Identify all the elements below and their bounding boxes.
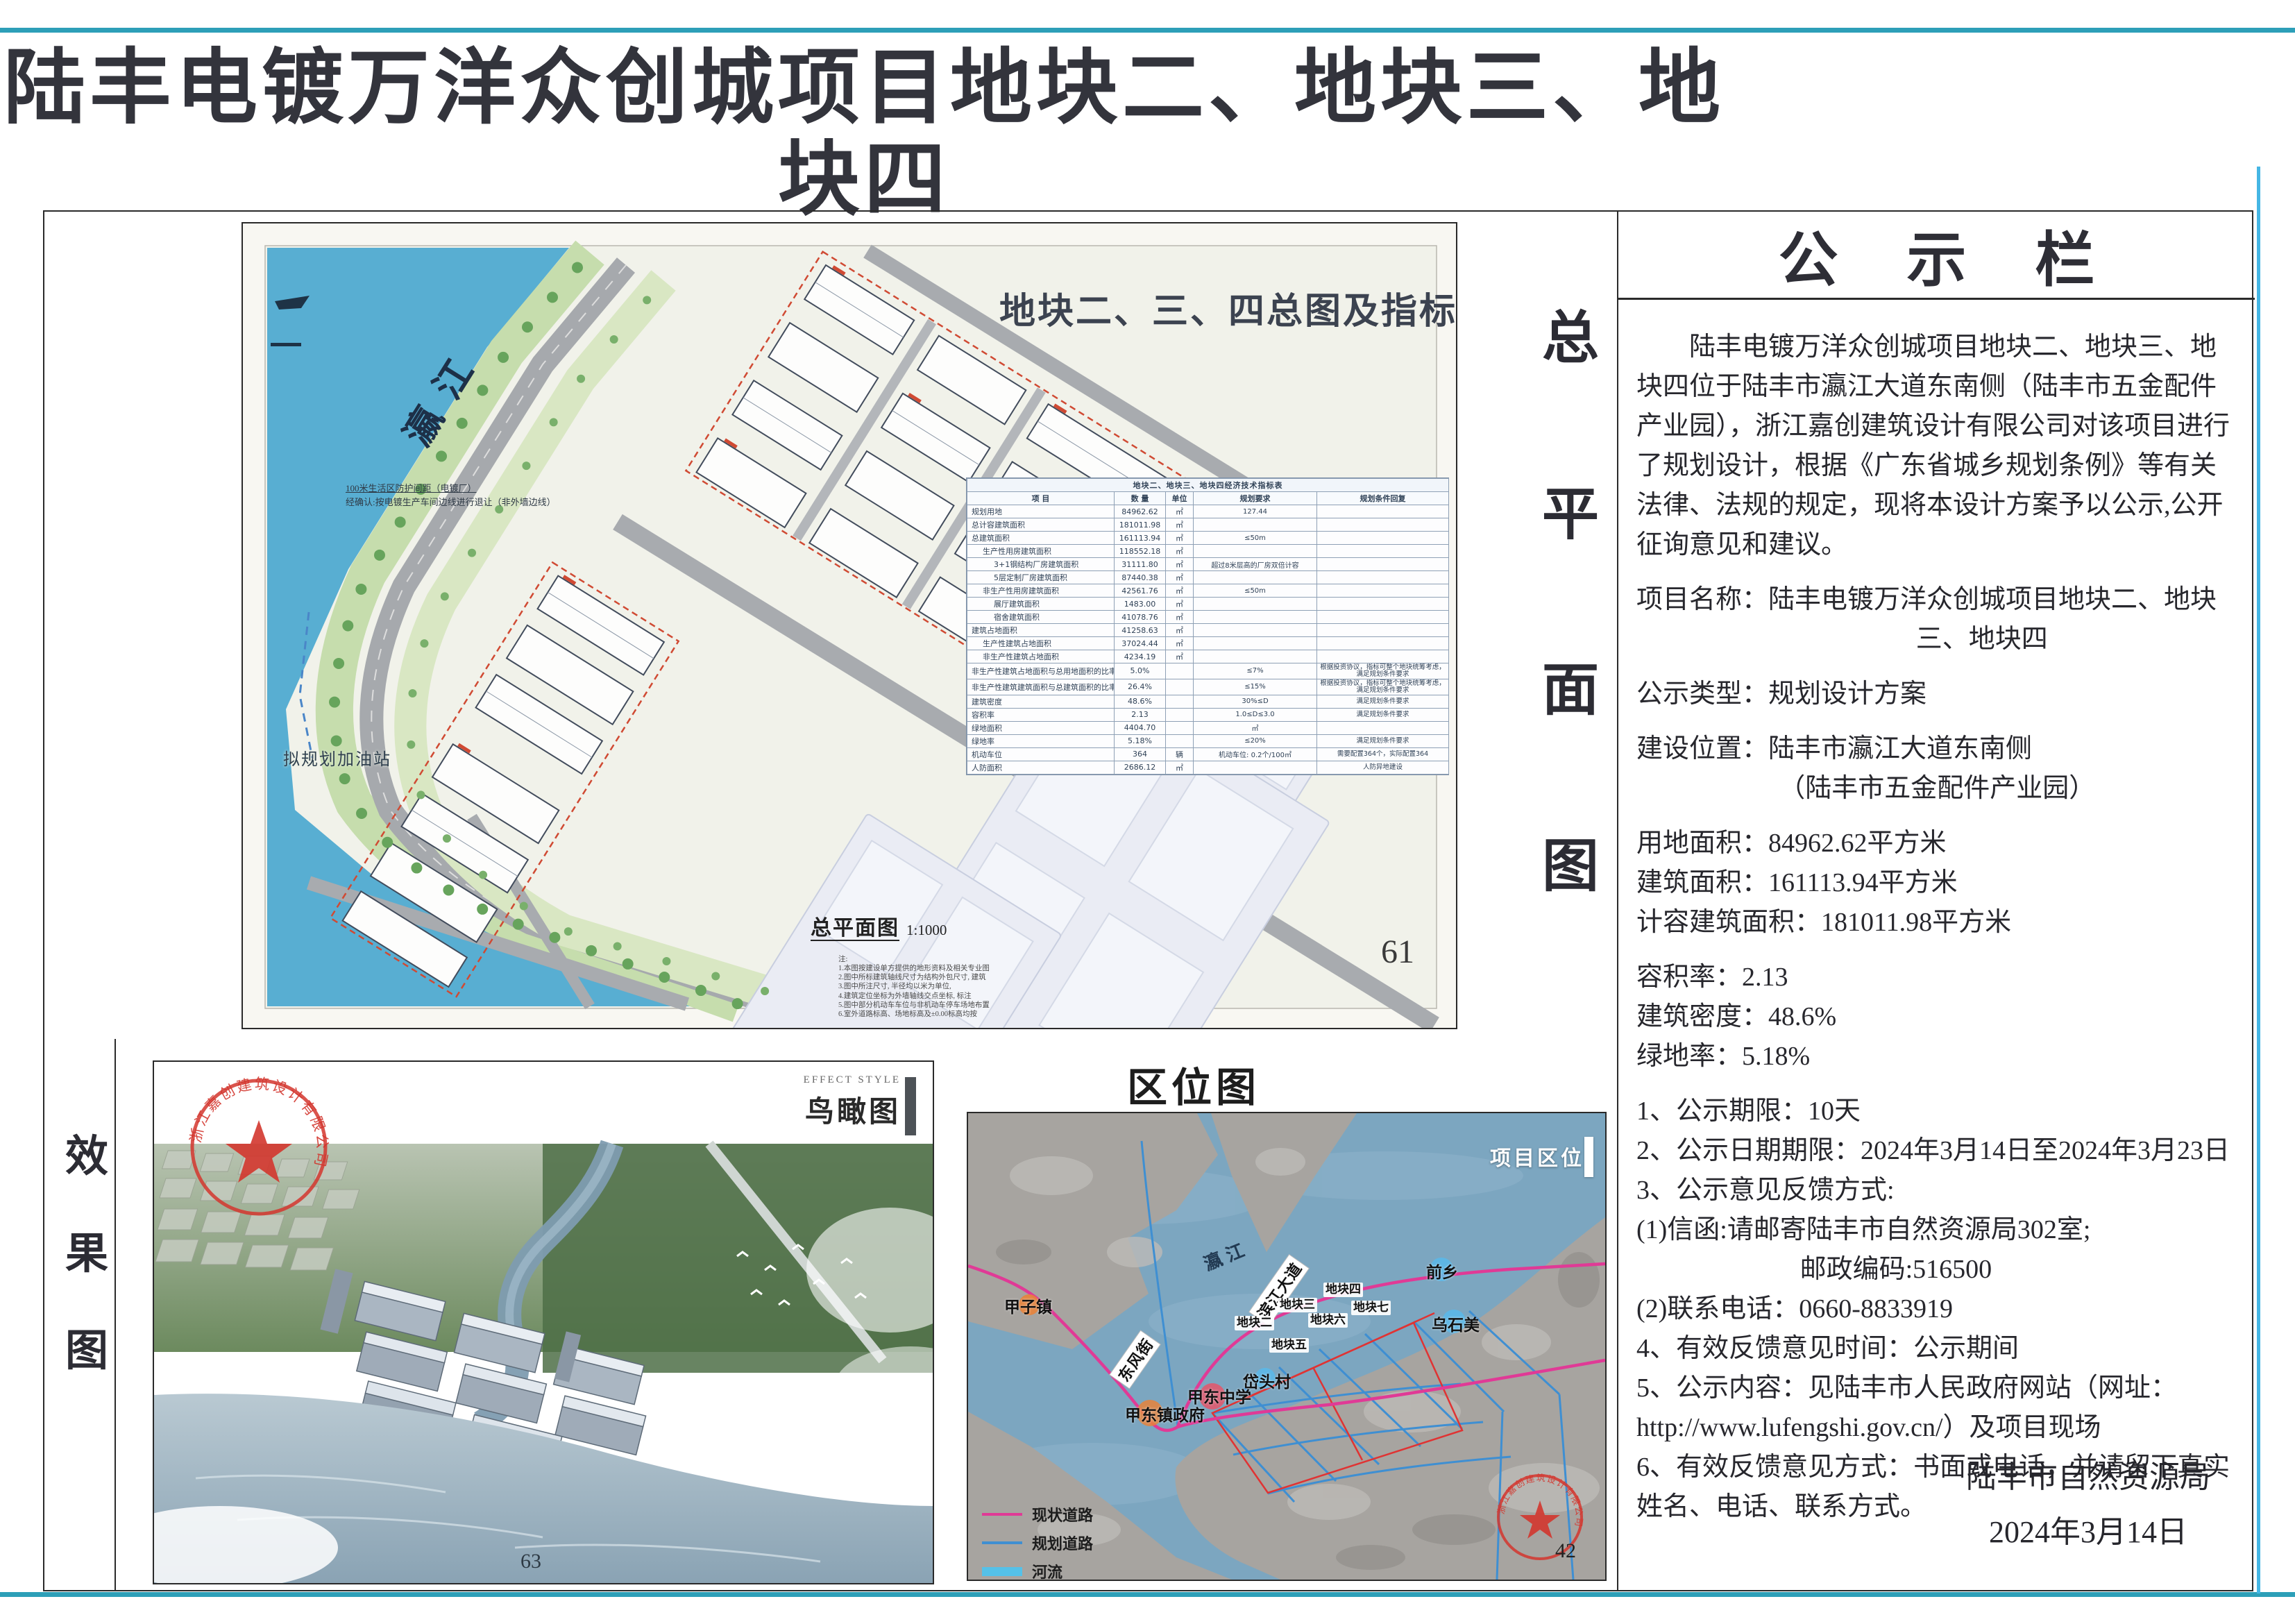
vertical-label-renderings: 效果图 — [57, 1121, 117, 1378]
plot-label: 地块三 — [1278, 1298, 1317, 1312]
notice-lines: 陆丰电镀万洋众创城项目地块二、地块三、地块四位于陆丰市瀛江大道东南侧（陆丰市五金… — [1618, 300, 2255, 1527]
plan-note-line: 4.建筑定位坐标为外墙轴线交点坐标, 标注 — [838, 992, 990, 1001]
table-row: 生产性建筑占地面积37024.44㎡ — [967, 637, 1449, 650]
notice-signoff: 陆丰市自然资源局 2024年3月14日 — [1966, 1450, 2210, 1559]
table-row: 规划用地84962.62㎡127.44 — [967, 505, 1449, 518]
notice-line: (2)联系电话：0660-8833919 — [1636, 1289, 2237, 1329]
notice-line: 计容建筑面积：181011.98平方米 — [1636, 903, 2237, 942]
table-row: 总建筑面积161113.94㎡≤50m — [967, 532, 1449, 545]
project-location-tag: 项目区位 — [1490, 1141, 1584, 1172]
plan-note-line: 6.室外道路标高、场地标高及±0.00标高均按 — [838, 1010, 990, 1019]
effect-panel: EFFECT STYLE 鸟瞰图 浙江嘉创建筑设计有限公司 63 — [153, 1060, 934, 1584]
notes-title: 注: — [838, 955, 990, 964]
table-row: 非生产性建筑建筑面积与总建筑面积的比率26.4%≤15%根据投资协议，指标可整个… — [967, 679, 1449, 695]
notice-heading: 公 示 栏 — [1618, 210, 2255, 300]
table-row: 宿舍建筑面积41078.76㎡ — [967, 611, 1449, 624]
place-label: 甲东镇政府 — [1125, 1402, 1205, 1426]
scale-value: 1:1000 — [906, 922, 947, 938]
legend-label: 河流 — [1032, 1560, 1062, 1581]
signoff-agency: 陆丰市自然资源局 — [1966, 1450, 2210, 1505]
siteplan-panel: 地块二、三、四总图及指标 瀛江 100米生活区防护间距（电镀厂） 经确认:按电镀… — [242, 222, 1457, 1029]
place-label: 前乡 — [1426, 1259, 1458, 1283]
birdseye-title: 鸟瞰图 — [805, 1088, 901, 1131]
table-row: 展厅建筑面积1483.00㎡ — [967, 598, 1449, 611]
location-map-title: 区位图 — [1069, 1055, 1319, 1113]
legend-swatch — [982, 1567, 1022, 1576]
gas-station-label: 拟规划加油站 — [283, 745, 391, 770]
scale-label: 总平面图1:1000 — [811, 911, 947, 941]
siteplan-map-title: 地块二、三、四总图及指标 — [999, 282, 1457, 334]
notice-line: 2、公示日期期限：2024年3月14日至2024年3月23日 — [1636, 1131, 2237, 1171]
table-row: 绿地率5.18%≤20%满足规划条件要求 — [967, 734, 1449, 747]
notice-line: 绿地率：5.18% — [1636, 1037, 2237, 1076]
notice-line: （陆丰市五金配件产业园） — [1636, 769, 2237, 809]
plan-note-line: 5.图中部分机动车车位与非机动车停车场地布置 — [838, 1001, 990, 1010]
table-row: 容积率2.131.0≤D≤3.0满足规划条件要求 — [967, 708, 1449, 721]
table-row: 非生产性用房建筑面积42561.76㎡≤50m — [967, 584, 1449, 598]
plan-note-line: 1.本图按建设单方提供的地形资料及相关专业图 — [838, 964, 990, 973]
location-page-number: 42 — [1555, 1539, 1576, 1563]
top-rule — [0, 28, 2295, 33]
table-row: 3+1钢结构厂房建筑面积31111.80㎡超过8米层高的厂房双倍计容 — [967, 558, 1449, 571]
project-location-bar — [1584, 1137, 1593, 1177]
vertical-label-char: 总 — [1542, 291, 1599, 374]
plot-label: 地块五 — [1269, 1338, 1309, 1353]
legend-label: 现状道路 — [1032, 1503, 1093, 1525]
table-title-row: 地块二、地块三、地块四经济技术指标表 — [967, 479, 1449, 492]
notice-line: 4、有效反馈意见时间：公示期间 — [1636, 1329, 2237, 1369]
place-label: 甲子镇 — [1004, 1294, 1052, 1317]
protection-note: 100米生活区防护间距（电镀厂） 经确认:按电镀生产车间边线进行退让（非外墙边线… — [346, 482, 556, 509]
notice-line: 3、公示意见反馈方式: — [1636, 1171, 2237, 1210]
notice-line: 公示类型：规划设计方案 — [1636, 675, 2237, 714]
place-label: 乌石美 — [1432, 1312, 1480, 1335]
plan-notes: 注: 1.本图按建设单方提供的地形资料及相关专业图2.图中所标建筑轴线尺寸为结构… — [838, 955, 990, 1019]
title-line1: 陆丰电镀万洋众创城项目地块二、地块三、地块四 — [0, 43, 1728, 226]
table-row: 绿地面积4404.70㎡ — [967, 721, 1449, 734]
notice-line: 建筑密度：48.6% — [1636, 997, 2237, 1037]
plot-label: 地块七 — [1351, 1301, 1391, 1315]
legend-swatch — [982, 1541, 1022, 1544]
plot-label: 地块六 — [1308, 1313, 1348, 1328]
plan-note-line: 2.图中所标建筑轴线尺寸为结构外包尺寸, 建筑 — [838, 973, 990, 982]
plot-label: 地块四 — [1323, 1283, 1363, 1297]
table-row: 机动车位364辆机动车位: 0.2个/100㎡需要配置364个，实际配置364 — [967, 747, 1449, 761]
company-stamp-icon: 浙江嘉创建筑设计有限公司 — [186, 1074, 332, 1220]
vertical-label-master-plan: 总平面图 — [1525, 291, 1616, 902]
vertical-label-char: 效 — [65, 1121, 108, 1183]
notice-line: 容积率：2.13 — [1636, 958, 2237, 997]
table-row: 总计容建筑面积181011.98㎡ — [967, 518, 1449, 532]
legend-label: 规划道路 — [1032, 1532, 1093, 1554]
table-row: 人防面积2686.12㎡人防异地建设 — [967, 761, 1449, 774]
table-row: 非生产性建筑占地面积与总用地面积的比率5.0%≤7%根据投资协议，指标可整个地块… — [967, 663, 1449, 679]
legend-swatch — [982, 1513, 1022, 1516]
scale-title: 总平面图 — [811, 917, 899, 941]
effect-style-caption: EFFECT STYLE — [804, 1074, 901, 1086]
notice-line: 项目名称：陆丰电镀万洋众创城项目地块二、地块三、地块四 — [1636, 580, 2237, 659]
vertical-label-char: 果 — [65, 1218, 108, 1280]
notice-line: 建设位置：陆丰市瀛江大道东南侧 — [1636, 729, 2237, 769]
table-row: 非生产性建筑占地面积4234.19㎡ — [967, 650, 1449, 663]
location-map-panel: 项目区位 瀛江 滨江大道 东风街 地块四地块七地块三地块二地块六地块五 甲子镇前… — [967, 1112, 1607, 1581]
vertical-label-char: 图 — [1542, 820, 1599, 902]
plot-label: 地块二 — [1235, 1316, 1274, 1330]
map-legend: 现状道路规划道路河流 — [982, 1503, 1093, 1581]
siteplan-page-number: 61 — [1381, 933, 1414, 971]
cyan-page-edge — [2257, 167, 2260, 1593]
notice-line: 1、公示期限：10天 — [1636, 1092, 2237, 1131]
table-row: 建筑密度48.6%30%≤D满足规划条件要求 — [967, 695, 1449, 708]
table-row: 5层定制厂房建筑面积87440.38㎡ — [967, 571, 1449, 584]
protection-note-line2: 经确认:按电镀生产车间边线进行退让（非外墙边线） — [346, 496, 556, 509]
effect-page-number: 63 — [520, 1550, 541, 1573]
notice-line: 建筑面积：161113.94平方米 — [1636, 863, 2237, 903]
table-row: 建筑占地面积41258.63㎡ — [967, 624, 1449, 637]
legend-item: 河流 — [982, 1560, 1093, 1581]
indicator-table: 地块二、地块三、地块四经济技术指标表项 目数 量单位规划要求规划条件回复规划用地… — [966, 477, 1449, 775]
table-header-row: 项 目数 量单位规划要求规划条件回复 — [967, 492, 1449, 505]
notice-line: 邮政编码:516500 — [1636, 1250, 2237, 1289]
notice-line: 陆丰电镀万洋众创城项目地块二、地块三、地块四位于陆丰市瀛江大道东南侧（陆丰市五金… — [1636, 328, 2237, 565]
notice-panel: 公 示 栏 陆丰电镀万洋众创城项目地块二、地块三、地块四位于陆丰市瀛江大道东南侧… — [1617, 210, 2255, 1591]
plan-note-line: 3.图中所注尺寸, 半径均以米为单位, — [838, 982, 990, 991]
legend-item: 规划道路 — [982, 1532, 1093, 1554]
notice-line: 5、公示内容：见陆丰市人民政府网站（网址：http://www.lufengsh… — [1636, 1369, 2237, 1448]
legend-item: 现状道路 — [982, 1503, 1093, 1525]
scanned-notice-sheet: { "title": { "line1": "陆丰电镀万洋众创城项目地块二、地块… — [0, 0, 2295, 1624]
vertical-label-char: 面 — [1542, 643, 1599, 726]
title-bar-decor — [905, 1077, 916, 1135]
vertical-label-char: 图 — [65, 1315, 108, 1378]
vertical-label-char: 平 — [1542, 468, 1599, 550]
bottom-rule — [0, 1592, 2295, 1597]
table-row: 生产性用房建筑面积118552.18㎡ — [967, 545, 1449, 558]
notice-line: 用地面积：84962.62平方米 — [1636, 824, 2237, 863]
signoff-date: 2024年3月14日 — [1966, 1505, 2210, 1559]
notice-line: (1)信函:请邮寄陆丰市自然资源局302室; — [1636, 1210, 2237, 1250]
protection-note-line1: 100米生活区防护间距（电镀厂） — [346, 482, 556, 496]
